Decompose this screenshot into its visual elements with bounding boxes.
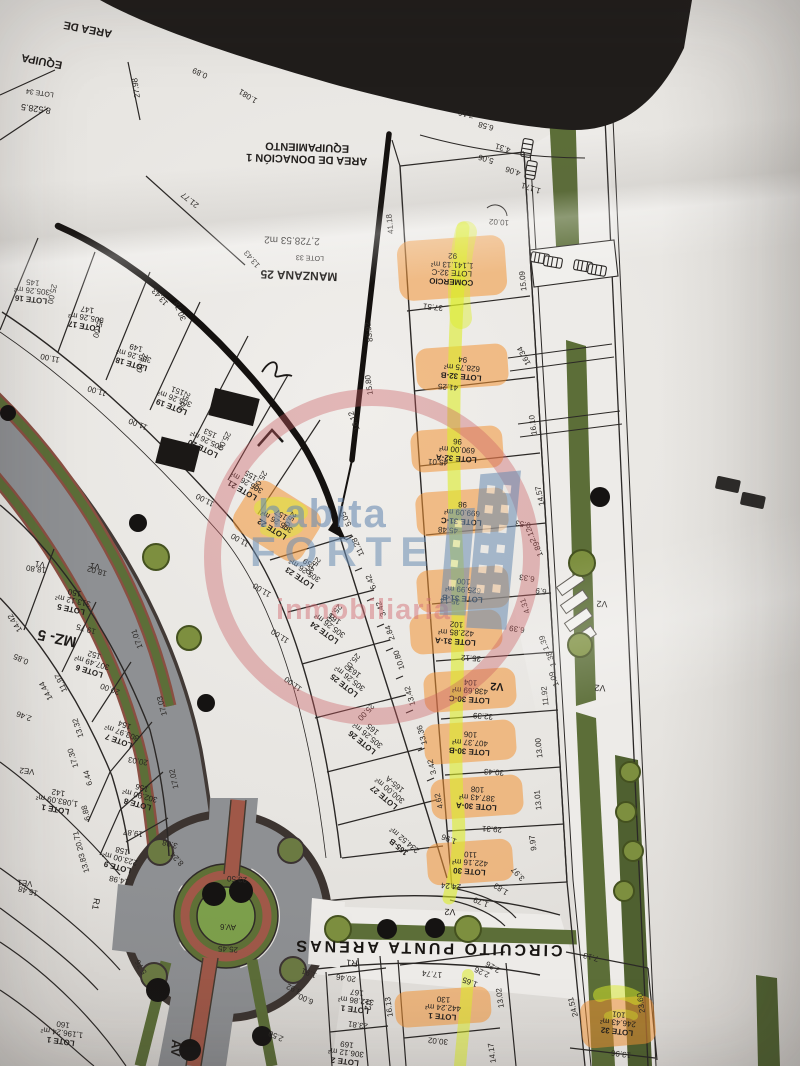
measurement-label: 11.00	[40, 352, 61, 365]
lot-label-highlighted: LOTE 31-A422.85 m²102	[435, 618, 478, 647]
road-code-label: AV	[168, 1039, 184, 1057]
measurement-label: 1.89	[531, 540, 545, 558]
measurement-label: 19.75	[75, 622, 97, 636]
measurement-label: 1.39	[537, 634, 551, 652]
measurement-label: 10.80	[392, 649, 407, 671]
measurement-label: 4.62	[433, 792, 446, 809]
measurement-label: 37.51	[423, 301, 444, 312]
measurement-label: 1.65	[461, 975, 479, 989]
measurement-label: 6.00	[297, 992, 315, 1007]
measurement-label: 30.78	[172, 300, 188, 322]
measurement-label: 4.31	[494, 141, 512, 154]
measurement-label: 17.01	[129, 628, 144, 650]
measurement-label: 1.79	[472, 895, 490, 909]
measurement-label: 14.44	[37, 680, 54, 702]
measurement-label: 1.38	[544, 650, 558, 668]
measurement-label: 6.39	[509, 623, 526, 634]
measurement-label: 10.02	[489, 217, 510, 227]
measurement-label: 6.58	[477, 120, 494, 133]
lot-label: AREA DE	[63, 17, 113, 38]
measurement-label: 11.00	[127, 416, 148, 432]
measurement-label: 17.30	[66, 747, 80, 769]
lot-label: LOTE 26305.26 m²165	[346, 714, 390, 757]
road-code-label: V1	[35, 559, 46, 569]
measurement-label: 15.80	[363, 374, 375, 395]
lot-label-highlighted: LOTE 1442.24 m²130	[424, 993, 462, 1021]
measurement-label: 13.83	[77, 852, 91, 874]
measurement-label: 0.85	[12, 652, 30, 667]
measurement-label: 13.01	[532, 790, 543, 811]
road-code-label: V2	[490, 680, 504, 693]
measurement-label: 13.02	[494, 987, 506, 1008]
measurement-label: 21.77	[179, 190, 200, 209]
lot-label: LOTE 27300.00 m²165-A	[368, 769, 412, 812]
measurement-label: 29.31	[482, 824, 503, 834]
measurement-label: 41.25	[438, 382, 459, 393]
measurement-label: 35.14	[440, 596, 461, 606]
lot-label-highlighted: LOTE 30422.16 m²110	[451, 848, 489, 876]
measurement-label: 14.17	[486, 1042, 498, 1063]
measurement-label: 32.39	[473, 711, 494, 721]
measurement-label: 1.171	[520, 181, 542, 196]
lot-label-highlighted: LOTE 31-C699.09 m²98	[441, 498, 484, 527]
measurement-label: 14.98	[108, 874, 129, 887]
road-code-label: VE2	[19, 766, 35, 777]
measurement-label: 20.03	[127, 755, 148, 767]
measurement-label: 0.89	[191, 66, 209, 81]
measurement-label: 6.44	[82, 769, 95, 786]
measurement-label: 14.57	[534, 485, 547, 506]
measurement-label: 13.32	[71, 717, 86, 739]
road-code-label: R1	[90, 897, 102, 910]
road-code-label: AV.6	[220, 922, 236, 932]
measurement-label: 6.33	[519, 572, 536, 583]
measurement-label: 11.00	[251, 581, 272, 599]
measurement-label: 5.06	[477, 152, 495, 165]
measurement-label: 1.081	[237, 87, 259, 105]
measurement-label: 7.16	[457, 108, 474, 120]
measurement-label: 17.74	[422, 968, 443, 979]
measurement-label: 3.97	[509, 865, 526, 883]
measurement-label: 11.28	[350, 536, 366, 557]
measurement-label: 27.98	[130, 77, 142, 98]
road-code-label: MZ- 5	[36, 626, 78, 651]
measurement-label: 45.01	[428, 457, 449, 467]
measurement-label: 2.50	[267, 1029, 285, 1044]
measurement-label: 25.45	[218, 944, 239, 954]
measurement-label: 30.02	[428, 1035, 449, 1046]
road-code-label: V1	[90, 561, 101, 571]
measurement-label: 7.13	[582, 951, 599, 964]
measurement-label: 3.42	[426, 758, 439, 775]
measurement-label: 23.50	[227, 874, 248, 884]
lot-label-highlighted: LOTE 32-B628.75 m²94	[440, 352, 483, 381]
lot-label: LOTE 5313.12 m²150	[53, 584, 94, 617]
measurement-label: 1.91	[300, 966, 318, 980]
measurement-label: 11.00	[86, 384, 107, 398]
measurement-label: 5.76	[133, 958, 149, 976]
lot-label: AREA DE DONACIÓN 1EQUIPAMIENTO	[246, 138, 368, 166]
measurement-label: 13.96	[610, 1048, 631, 1060]
lot-label-highlighted: LOTE 30-A387.43 m²108	[456, 783, 499, 812]
lot-label: LOTE 9223.00 m²158	[99, 841, 141, 875]
measurement-label: 41.18	[384, 214, 395, 235]
measurement-label: 11.00	[269, 627, 290, 645]
measurement-label: 17.03	[155, 695, 169, 717]
measurement-label: 5.05	[338, 510, 353, 528]
measurement-label: 1.96	[440, 832, 458, 846]
measurement-label: 15.09	[517, 271, 528, 292]
lot-label: LOTE 8302.90 m²156	[119, 778, 161, 812]
measurement-label: 20.00	[99, 681, 121, 696]
road-code-label: V2	[594, 683, 606, 694]
measurement-label: 35.12	[461, 653, 482, 663]
measurement-label: 1.09	[547, 670, 561, 688]
road-code-label: VE1	[17, 878, 33, 889]
measurement-label: 13.00	[533, 738, 544, 759]
measurement-label: 11.00	[194, 491, 215, 508]
lot-label-highlighted: LOTE 30-C438.69 m²104	[449, 676, 492, 705]
lot-label: LOTE 33	[296, 253, 324, 262]
lot-label: LOTE 7303.97 m²154	[101, 714, 144, 751]
measurement-label: 24.51	[566, 996, 580, 1018]
lot-label: LOTE 34	[26, 86, 55, 97]
measurement-label: 3.08	[161, 838, 178, 851]
lot-label: 2,728.53 m2	[264, 233, 320, 246]
measurement-label: 30.43	[484, 767, 505, 777]
lot-label-highlighted: LOTE 30-B407.37 m²106	[449, 728, 492, 757]
measurement-label: 17.02	[168, 768, 181, 789]
photographed-plat-map: COMERCIOLOTE 32-C1,141.13 m²92LOTE 32-B6…	[0, 0, 800, 1066]
measurement-label: 23.81	[347, 1019, 368, 1031]
measurement-label: 83.92	[363, 322, 374, 343]
lot-label: LOTE 11,196.24 m²160	[39, 1016, 85, 1048]
measurement-label: 16.13	[383, 996, 395, 1017]
lot-label: 165-B234.52 m²	[383, 825, 422, 861]
measurement-label: 19.87	[122, 827, 143, 839]
road-code-label: V2	[444, 907, 456, 918]
lot-label: LOTE 2306.12 m²169	[327, 1037, 366, 1066]
measurement-label: 11.97	[53, 672, 69, 693]
measurement-label: 13.36	[415, 724, 429, 746]
measurement-label: 2.84	[383, 624, 397, 642]
measurement-label: 16.34	[515, 345, 532, 367]
measurement-label: 8.24	[168, 850, 185, 868]
street-name-label: CIRCUITO PUNTA ARENAS	[293, 936, 563, 959]
measurement-label: 11.00	[282, 675, 303, 694]
measurement-label: 4.31	[518, 597, 532, 615]
lot-label: 8,528.5	[20, 101, 51, 115]
lot-label: EQUIPA	[21, 50, 64, 70]
measurement-label: 1.83	[492, 881, 510, 897]
measurement-label: 13.43	[150, 287, 170, 308]
lot-label-highlighted: COMERCIOLOTE 32-C1,141.13 m²92	[429, 250, 475, 287]
measurement-label: 11.00	[229, 531, 250, 549]
map-labels-layer: COMERCIOLOTE 32-C1,141.13 m²92LOTE 32-B6…	[0, 0, 800, 1066]
measurement-label: 13.42	[403, 685, 417, 707]
measurement-label: 6.88	[80, 804, 93, 821]
measurement-label: 20.46	[335, 972, 356, 984]
measurement-label: 24.24	[441, 881, 462, 892]
road-code-label: V2	[363, 999, 374, 1011]
measurement-label: 45.48	[438, 525, 459, 535]
measurement-label: 16.10	[527, 414, 539, 435]
measurement-label: 20.71	[71, 830, 85, 852]
lot-label: LOTE 11,083.09 m²142	[34, 784, 81, 817]
measurement-label: 13.43	[242, 248, 262, 269]
lot-label-highlighted: LOTE 32246.43 m²101	[599, 1007, 638, 1036]
road-code-label: V2	[596, 599, 608, 610]
measurement-label: 9.97	[527, 835, 538, 852]
measurement-label: 16.12	[346, 410, 361, 432]
measurement-label: 2.46	[15, 709, 33, 723]
road-code-label: R1	[346, 958, 358, 969]
measurement-label: 6.42	[364, 573, 378, 591]
lot-label: LOTE 6307.49 m²152	[71, 644, 113, 679]
measurement-label: 3.42	[374, 600, 388, 618]
lot-label: MANZANA 25	[260, 267, 337, 283]
measurement-label: 23.60	[635, 992, 647, 1013]
measurement-label: 4.06	[504, 164, 522, 177]
measurement-label: 14.42	[6, 612, 24, 634]
measurement-label: 6.9	[535, 586, 547, 596]
measurement-label: 11.92	[540, 686, 551, 706]
